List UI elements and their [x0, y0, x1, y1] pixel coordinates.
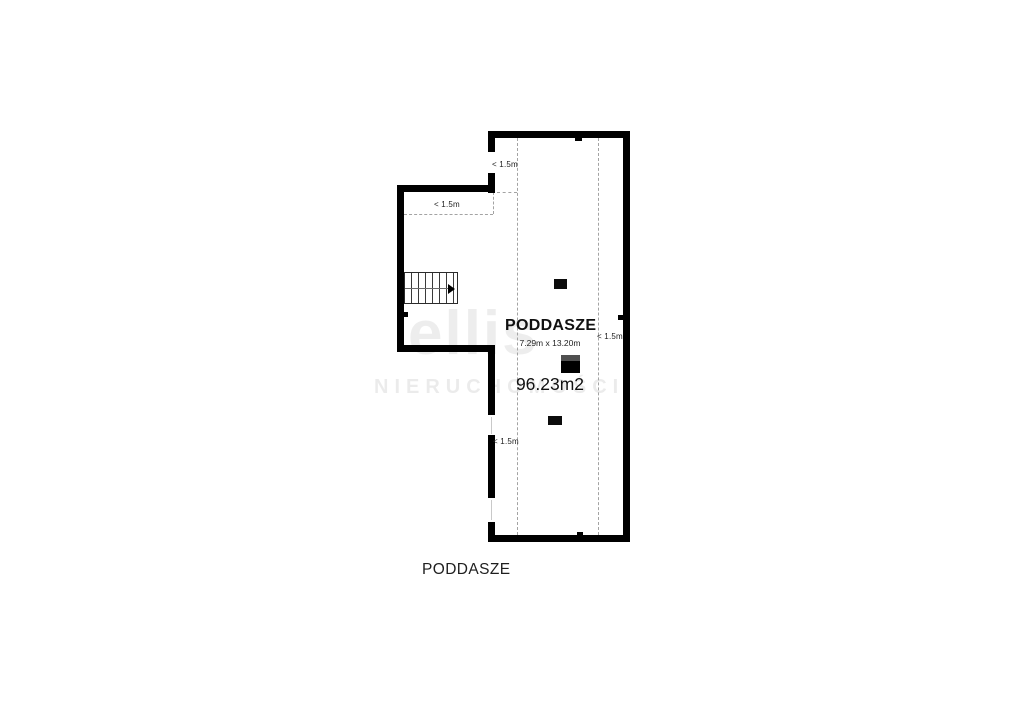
floor-plan: ellis NIERUCHOMOŚCI < 1.5m < 1.5m < 1.5m…	[0, 0, 1024, 724]
wall-left-segment-3	[488, 345, 495, 415]
chimney-block-upper	[554, 279, 567, 289]
chimney-block-center	[561, 355, 580, 373]
dimension-tick-top	[575, 136, 582, 141]
wall-top	[488, 131, 630, 138]
window-line-upper	[491, 417, 492, 434]
wall-left-segment-5	[488, 522, 495, 542]
height-limit-line-extension-horizontal	[404, 214, 493, 215]
extension-wall-left	[397, 185, 404, 352]
window-line-lower	[491, 500, 492, 520]
dimension-tick-left	[403, 312, 408, 317]
height-limit-line-left-vertical	[517, 138, 518, 535]
height-limit-line-notch-horizontal	[497, 192, 517, 193]
dimension-tick-right	[618, 315, 623, 320]
room-dimensions: 7.29m x 13.20m	[490, 338, 610, 348]
stair-direction-arrow-icon	[448, 284, 455, 294]
floor-caption: PODDASZE	[422, 561, 510, 579]
height-label-extension: < 1.5m	[434, 200, 460, 209]
wall-bottom	[488, 535, 630, 542]
chimney-block-lower	[548, 416, 562, 425]
height-label-top-left: < 1.5m	[492, 160, 518, 169]
height-label-lower-left: < 1.5m	[493, 437, 519, 446]
staircase	[404, 272, 458, 304]
wall-right	[623, 131, 630, 542]
wall-left-segment-1	[488, 131, 495, 152]
staircase-walk-line	[405, 288, 449, 289]
extension-wall-bottom	[397, 345, 495, 352]
extension-wall-top	[397, 185, 495, 192]
height-limit-line-extension-end	[493, 192, 494, 214]
dimension-tick-bottom	[577, 532, 583, 537]
room-title: PODDASZE	[505, 317, 595, 335]
room-area: 96.23m2	[495, 374, 605, 395]
